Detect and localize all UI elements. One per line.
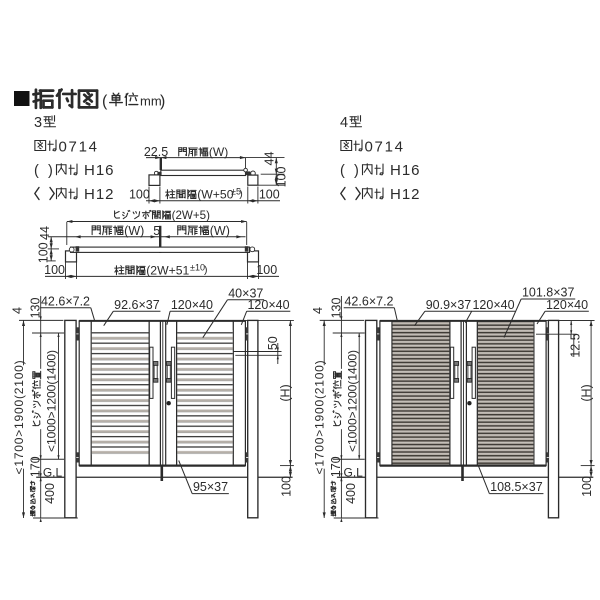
svg-text:4: 4 (340, 115, 348, 131)
svg-text:100: 100 (259, 187, 280, 201)
svg-text:(: ( (34, 163, 39, 179)
svg-text:(W+50: (W+50 (197, 187, 233, 201)
svg-text:120×40: 120×40 (171, 298, 213, 312)
svg-text:): ) (48, 163, 53, 179)
svg-text:120×40: 120×40 (247, 298, 289, 312)
svg-text:(H): (H) (579, 384, 593, 401)
svg-text:(: ( (340, 163, 345, 179)
svg-text:4: 4 (311, 307, 325, 314)
svg-text:120×40: 120×40 (546, 298, 588, 312)
svg-text:42.6×7.2: 42.6×7.2 (41, 295, 90, 309)
svg-text:100: 100 (129, 187, 150, 201)
svg-text:): ) (239, 188, 243, 200)
svg-text:100: 100 (256, 263, 277, 277)
svg-text:100: 100 (44, 263, 65, 277)
svg-text:0714: 0714 (365, 139, 405, 156)
svg-text:(W): (W) (210, 224, 230, 238)
svg-text:0714: 0714 (59, 139, 99, 156)
svg-text:): ) (160, 93, 165, 110)
svg-text:130: 130 (329, 298, 343, 319)
svg-text:(2W+5): (2W+5) (172, 209, 210, 222)
svg-text:170: 170 (28, 456, 42, 477)
svg-text:(H): (H) (279, 384, 293, 401)
svg-text:44: 44 (38, 226, 52, 240)
svg-text:170: 170 (329, 456, 343, 477)
svg-text:100: 100 (580, 476, 594, 497)
svg-text:400: 400 (43, 483, 57, 504)
svg-text:100: 100 (279, 476, 293, 497)
svg-text:108.5×37: 108.5×37 (490, 480, 543, 494)
svg-text:): ) (354, 163, 359, 179)
svg-text:22.5: 22.5 (144, 145, 168, 159)
svg-text:50: 50 (266, 336, 280, 350)
svg-text:H16: H16 (84, 162, 115, 179)
svg-text:(: ( (102, 93, 108, 110)
svg-text:44: 44 (263, 152, 277, 166)
svg-text:(W): (W) (209, 145, 228, 159)
svg-text:92.6×37: 92.6×37 (114, 298, 160, 312)
svg-text:12.5: 12.5 (569, 333, 583, 357)
svg-text:90.9×37: 90.9×37 (426, 298, 472, 312)
svg-text:H12: H12 (84, 186, 115, 203)
svg-text:100: 100 (274, 167, 288, 188)
svg-text:120×40: 120×40 (472, 298, 514, 312)
svg-text:<1700>1900(2100): <1700>1900(2100) (313, 360, 327, 475)
svg-text:100: 100 (37, 242, 51, 263)
svg-text:3: 3 (34, 115, 42, 131)
svg-text:±10: ±10 (190, 263, 205, 273)
svg-text:400: 400 (344, 483, 358, 504)
svg-text:<1000>1200(1400): <1000>1200(1400) (345, 350, 359, 452)
svg-text:4: 4 (10, 307, 24, 314)
svg-text:H12: H12 (390, 186, 421, 203)
svg-text:(W): (W) (124, 224, 144, 238)
svg-text:<1700>1900(2100): <1700>1900(2100) (12, 360, 26, 475)
svg-text:(2W+51: (2W+51 (146, 263, 189, 277)
svg-text:95×37: 95×37 (193, 480, 228, 494)
svg-text:42.6×7.2: 42.6×7.2 (344, 295, 393, 309)
svg-text:H16: H16 (390, 162, 421, 179)
svg-text:<1000>1200(1400): <1000>1200(1400) (45, 350, 59, 452)
svg-text:mm: mm (140, 94, 162, 109)
svg-text:): ) (204, 264, 208, 276)
